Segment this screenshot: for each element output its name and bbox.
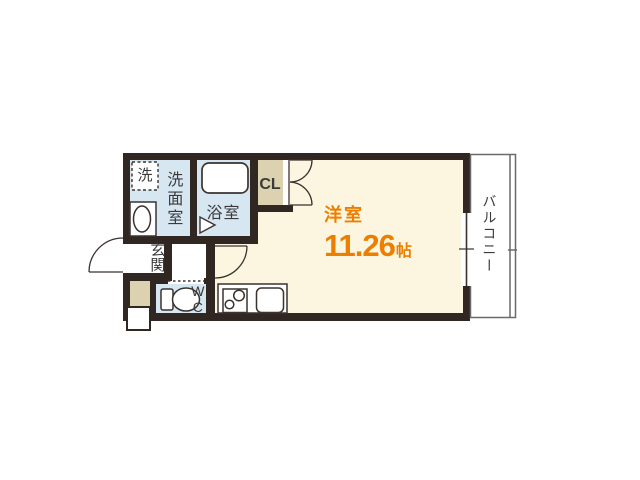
balcony-label: バルコニー (480, 184, 498, 284)
closet-label: CL (255, 175, 285, 195)
main-room-label: 洋室 11.26 帖 (324, 201, 412, 264)
main-room-floor (215, 243, 258, 313)
wall-segment (123, 236, 258, 244)
main-room-floor (258, 212, 290, 313)
wall-segment (123, 313, 470, 321)
entrance-door-arc (89, 238, 123, 272)
washer-label: 洗 (132, 162, 158, 190)
entrance-step (130, 281, 150, 306)
floor-plan: 洗 洗面室 浴室 CL 玄関 WC バルコニー 洋室 11.26 帖 (0, 0, 640, 480)
main-room-area-value: 11.26 (324, 228, 395, 264)
washroom-label: 洗面室 (162, 161, 182, 237)
bathroom-floor (197, 160, 250, 236)
main-room-area-unit: 帖 (396, 237, 412, 261)
wall-segment (250, 160, 258, 243)
wall-segment (463, 286, 470, 321)
bathroom-label: 浴室 (197, 204, 250, 224)
entrance-label: 玄関 (148, 238, 165, 276)
wall-segment (250, 205, 293, 212)
wc-label: WC (189, 284, 206, 313)
meter-box (126, 306, 151, 331)
wall-segment (463, 153, 470, 213)
wall-segment (123, 153, 470, 160)
main-room-name: 洋室 (324, 201, 412, 227)
wall-segment (190, 160, 197, 238)
wall-segment (123, 153, 130, 238)
